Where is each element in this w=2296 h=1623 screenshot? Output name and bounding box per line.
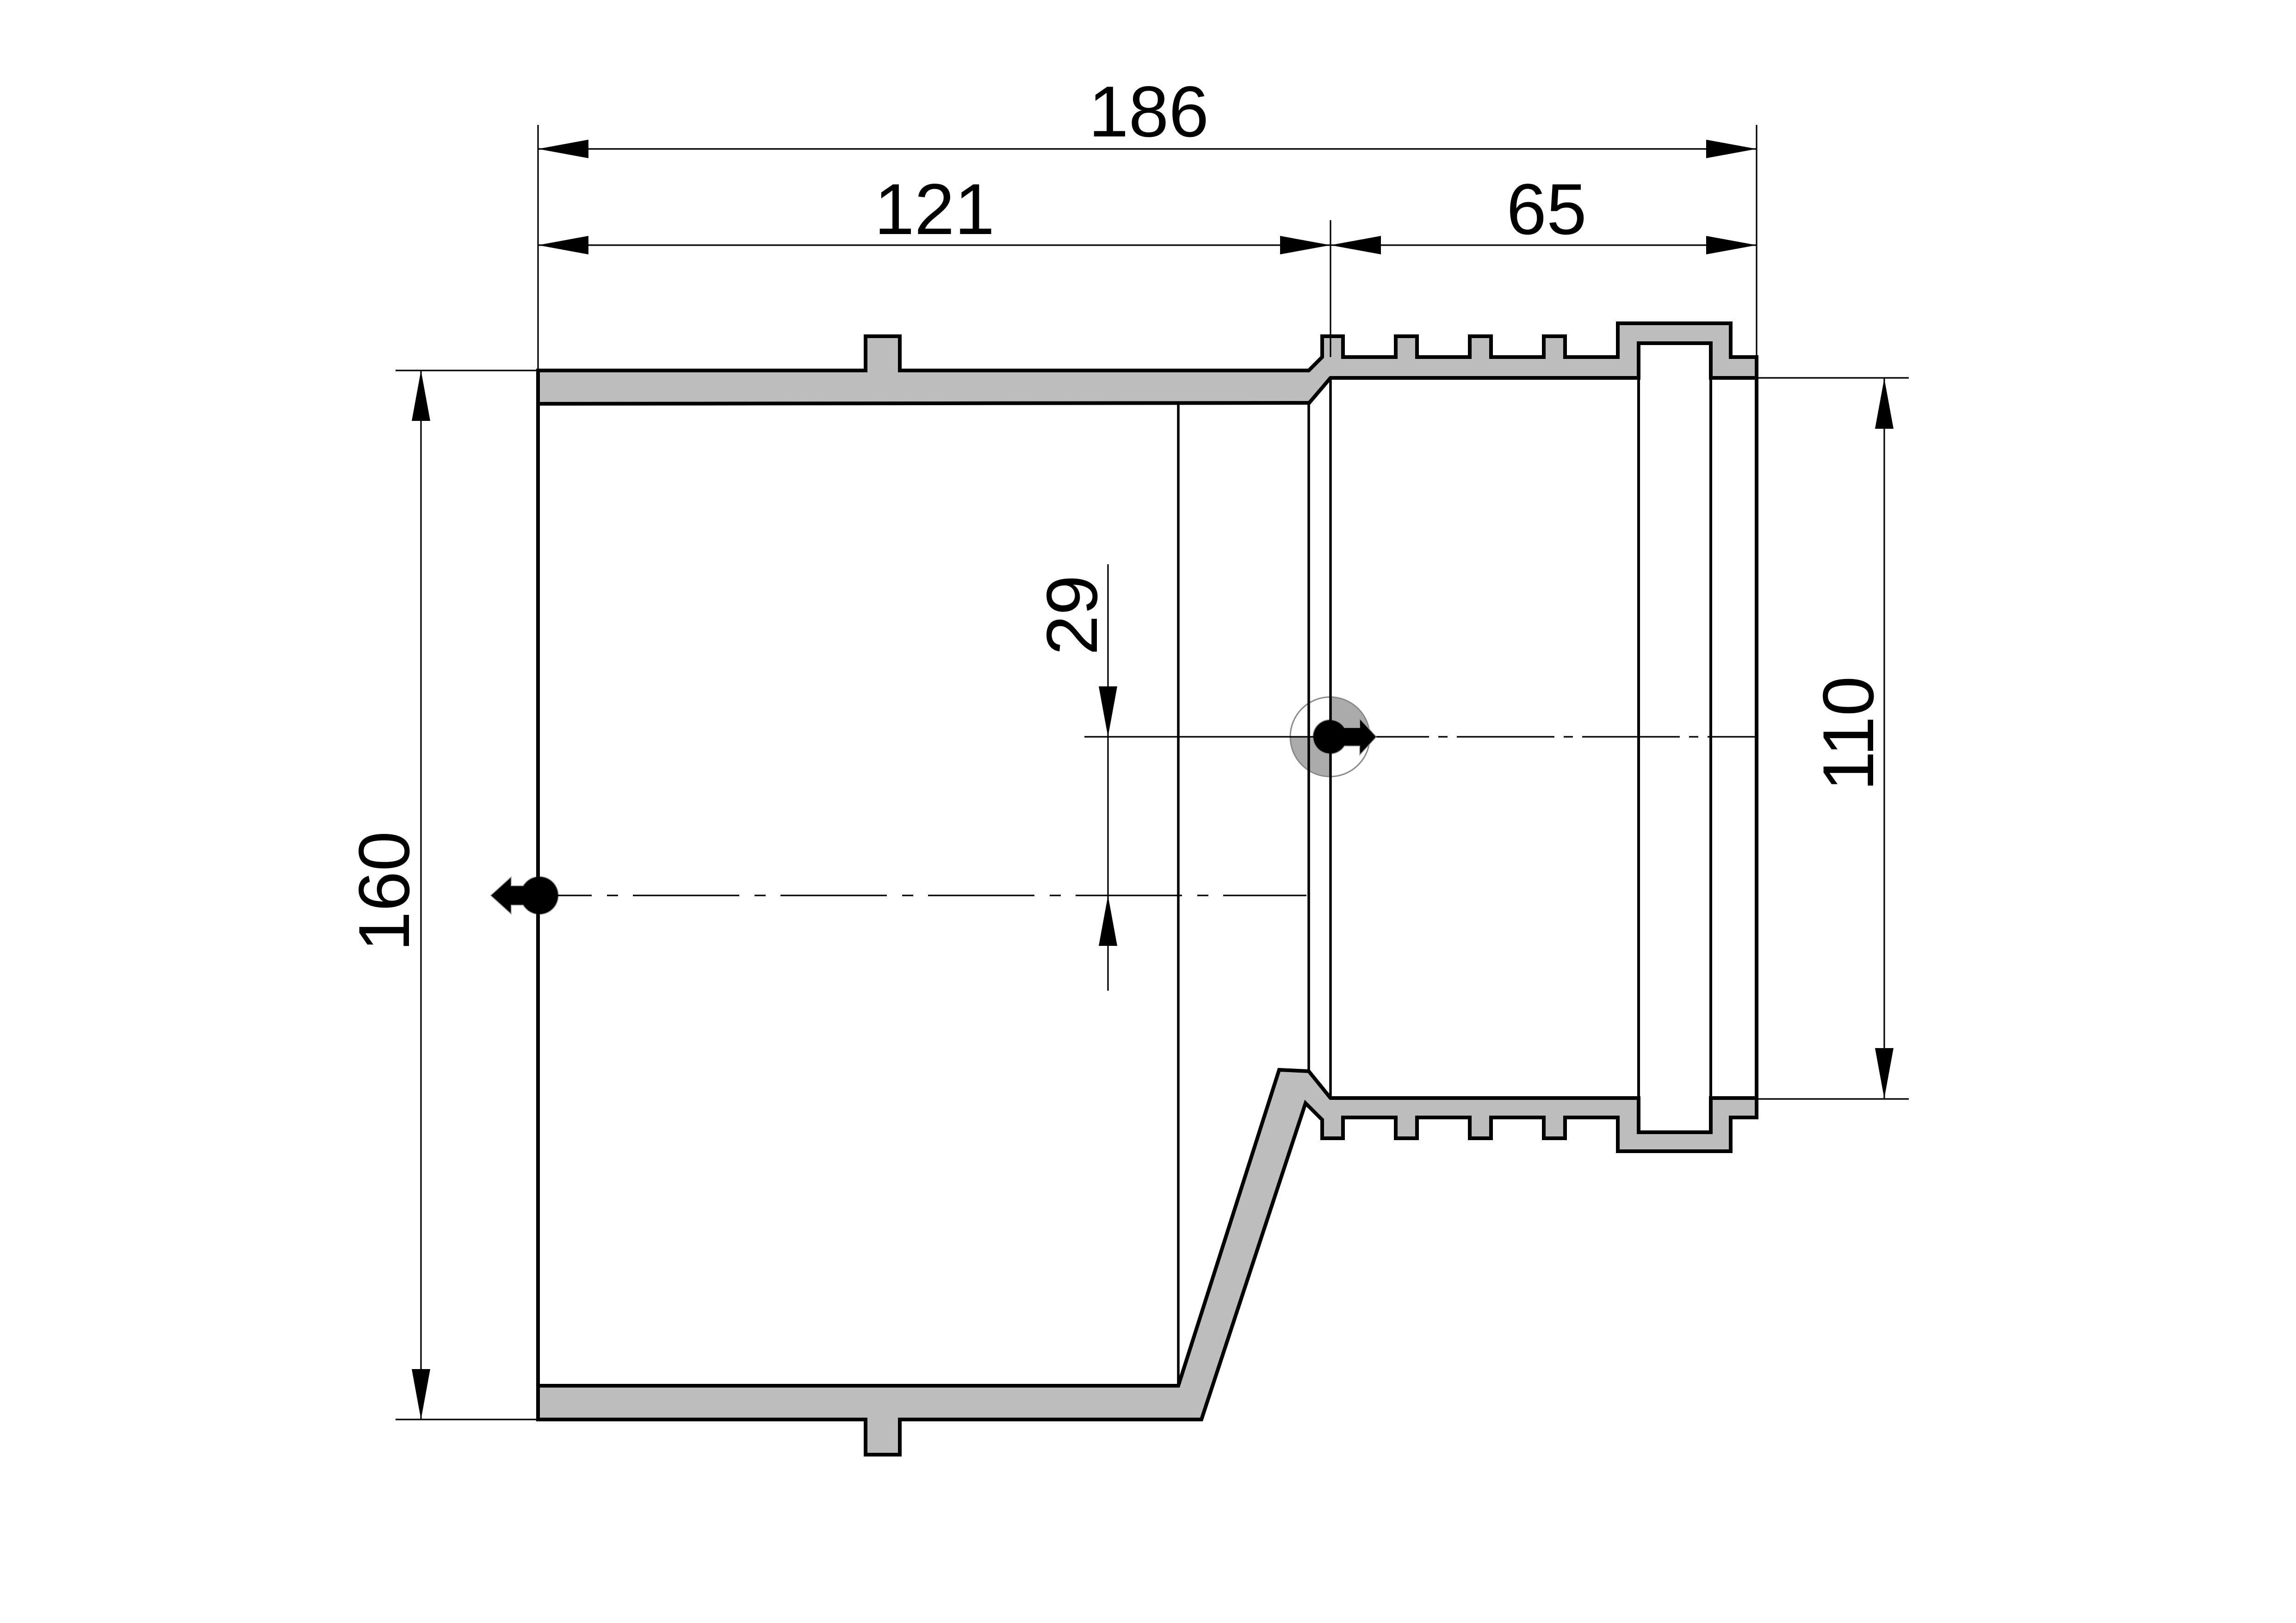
svg-text:65: 65 (1506, 169, 1587, 250)
svg-text:121: 121 (874, 169, 995, 250)
svg-text:160: 160 (344, 831, 425, 951)
svg-text:186: 186 (1089, 72, 1209, 152)
svg-text:29: 29 (1032, 575, 1113, 655)
svg-text:110: 110 (1808, 676, 1889, 791)
